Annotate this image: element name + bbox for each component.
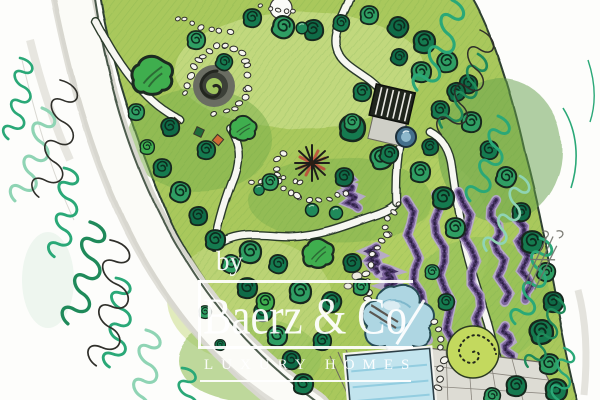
canopy-tree	[132, 56, 173, 94]
stepping-stone	[244, 72, 252, 79]
stepping-stone	[437, 344, 444, 350]
shrub-tree	[240, 241, 261, 263]
stepping-stone	[382, 225, 388, 230]
topiary-ball	[296, 22, 308, 34]
shrub-tree	[313, 332, 331, 350]
shrub-tree	[446, 218, 465, 238]
shrub-tree	[215, 340, 226, 351]
stepping-stone	[230, 46, 238, 52]
shrub-tree	[414, 31, 435, 53]
shrub-tree	[153, 159, 171, 177]
shrub-tree	[128, 104, 144, 120]
stepping-stone	[268, 6, 273, 11]
stepping-stone	[273, 166, 280, 171]
shrub-tree	[344, 114, 360, 130]
stepping-stone	[438, 336, 444, 342]
stepping-stone	[281, 186, 287, 191]
shrub-tree	[187, 31, 205, 49]
shrub-tree	[360, 6, 378, 24]
shrub-tree	[206, 230, 225, 250]
stepping-stone	[364, 296, 372, 301]
stepping-stone	[374, 245, 380, 250]
shrub-tree	[238, 278, 257, 298]
shrub-tree	[256, 293, 274, 311]
shrub-tree	[540, 354, 559, 374]
stepping-stone	[199, 54, 206, 59]
shrub-tree	[438, 294, 454, 310]
shrub-tree	[353, 279, 369, 295]
spiral-mound	[193, 65, 235, 107]
stepping-stone	[290, 9, 295, 13]
stepping-stone	[182, 17, 188, 21]
stepping-stone	[232, 107, 238, 111]
topiary-ball	[306, 204, 319, 217]
garden-plan-image: by Baerz & Co LUXURY HOMES	[0, 0, 600, 400]
shrub-tree	[262, 174, 278, 190]
shrub-tree	[480, 141, 498, 159]
shrub-tree	[353, 83, 371, 101]
stepping-stone	[209, 27, 215, 32]
shrub-tree	[411, 162, 430, 182]
topiary-ball	[254, 185, 264, 195]
shrub-tree	[335, 168, 353, 186]
shrub-tree	[140, 140, 154, 155]
hot-tub	[396, 127, 416, 147]
shrub-tree	[243, 9, 261, 27]
canopy-tree	[303, 239, 334, 268]
stepping-stone	[249, 180, 255, 184]
shrub-tree	[197, 141, 215, 159]
stepping-stone	[343, 191, 349, 197]
shrub-tree	[294, 374, 313, 394]
shrub-tree	[268, 326, 287, 346]
shrub-tree	[290, 281, 311, 303]
stepping-stone	[242, 94, 250, 101]
spiral-lawn	[447, 326, 499, 378]
stepping-stone	[431, 319, 439, 325]
topiary-ball	[330, 207, 343, 220]
shrub-tree	[507, 376, 526, 396]
swimming-pool	[346, 348, 435, 400]
stepping-stone	[368, 262, 374, 269]
shrub-tree	[522, 231, 543, 253]
shrub-tree	[199, 306, 211, 319]
stepping-stone	[281, 175, 286, 179]
stepping-stone	[184, 83, 190, 89]
shrub-tree	[425, 265, 439, 280]
shrub-tree	[433, 187, 454, 209]
